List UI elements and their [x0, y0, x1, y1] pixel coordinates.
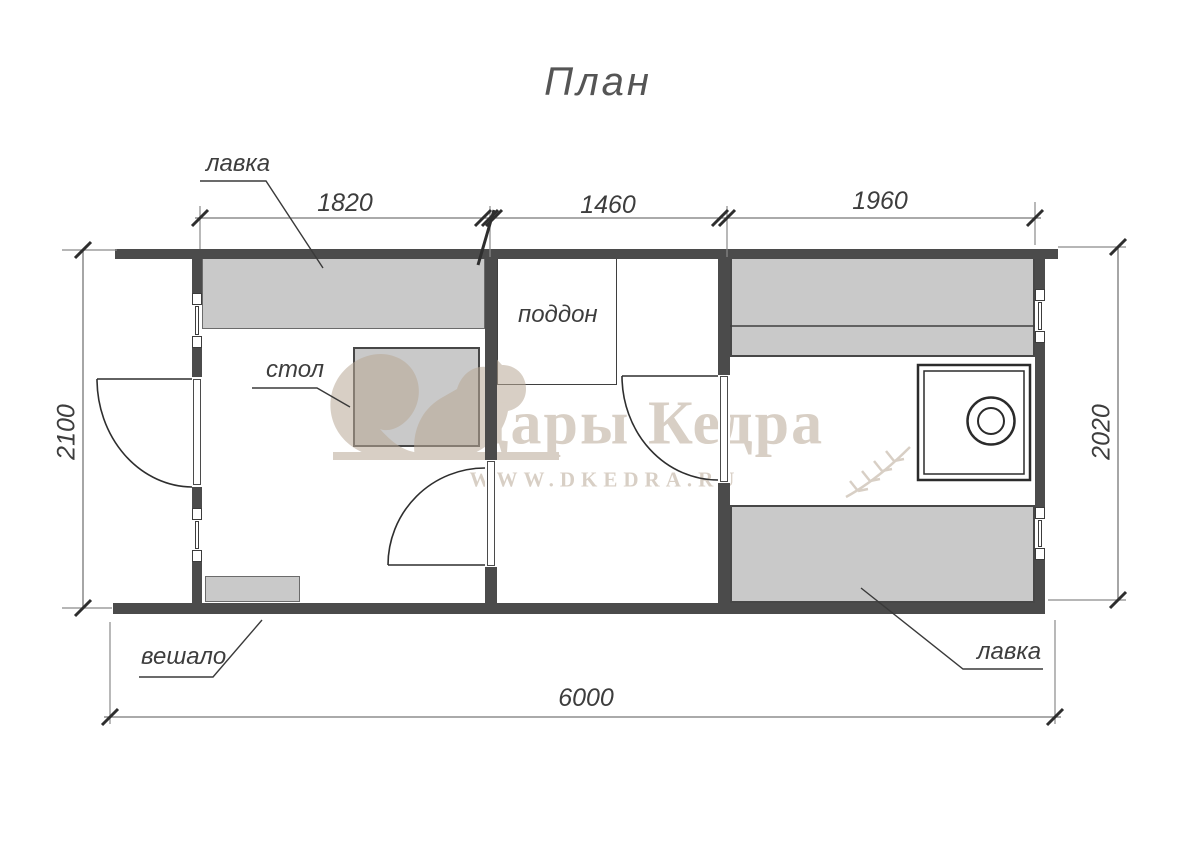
dim-top-1: 1820: [317, 189, 373, 218]
label-bench-bottom: лавка: [977, 638, 1041, 666]
text-layer: План 1820 1460 1960 2100 2020 6000 лавка…: [0, 0, 1200, 848]
label-table: стол: [266, 356, 324, 384]
label-tray: поддон: [518, 301, 598, 329]
floor-plan-drawing: Дары Кедра WWW.DKEDRA.RU: [0, 0, 1200, 848]
dim-top-3: 1960: [852, 187, 908, 216]
dim-bottom: 6000: [558, 684, 614, 713]
label-hanger: вешало: [141, 643, 226, 671]
drawing-title: План: [544, 60, 652, 105]
dim-left: 2100: [53, 404, 82, 460]
dim-right: 2020: [1088, 404, 1117, 460]
label-bench-top: лавка: [206, 150, 270, 178]
dim-top-2: 1460: [580, 191, 636, 220]
